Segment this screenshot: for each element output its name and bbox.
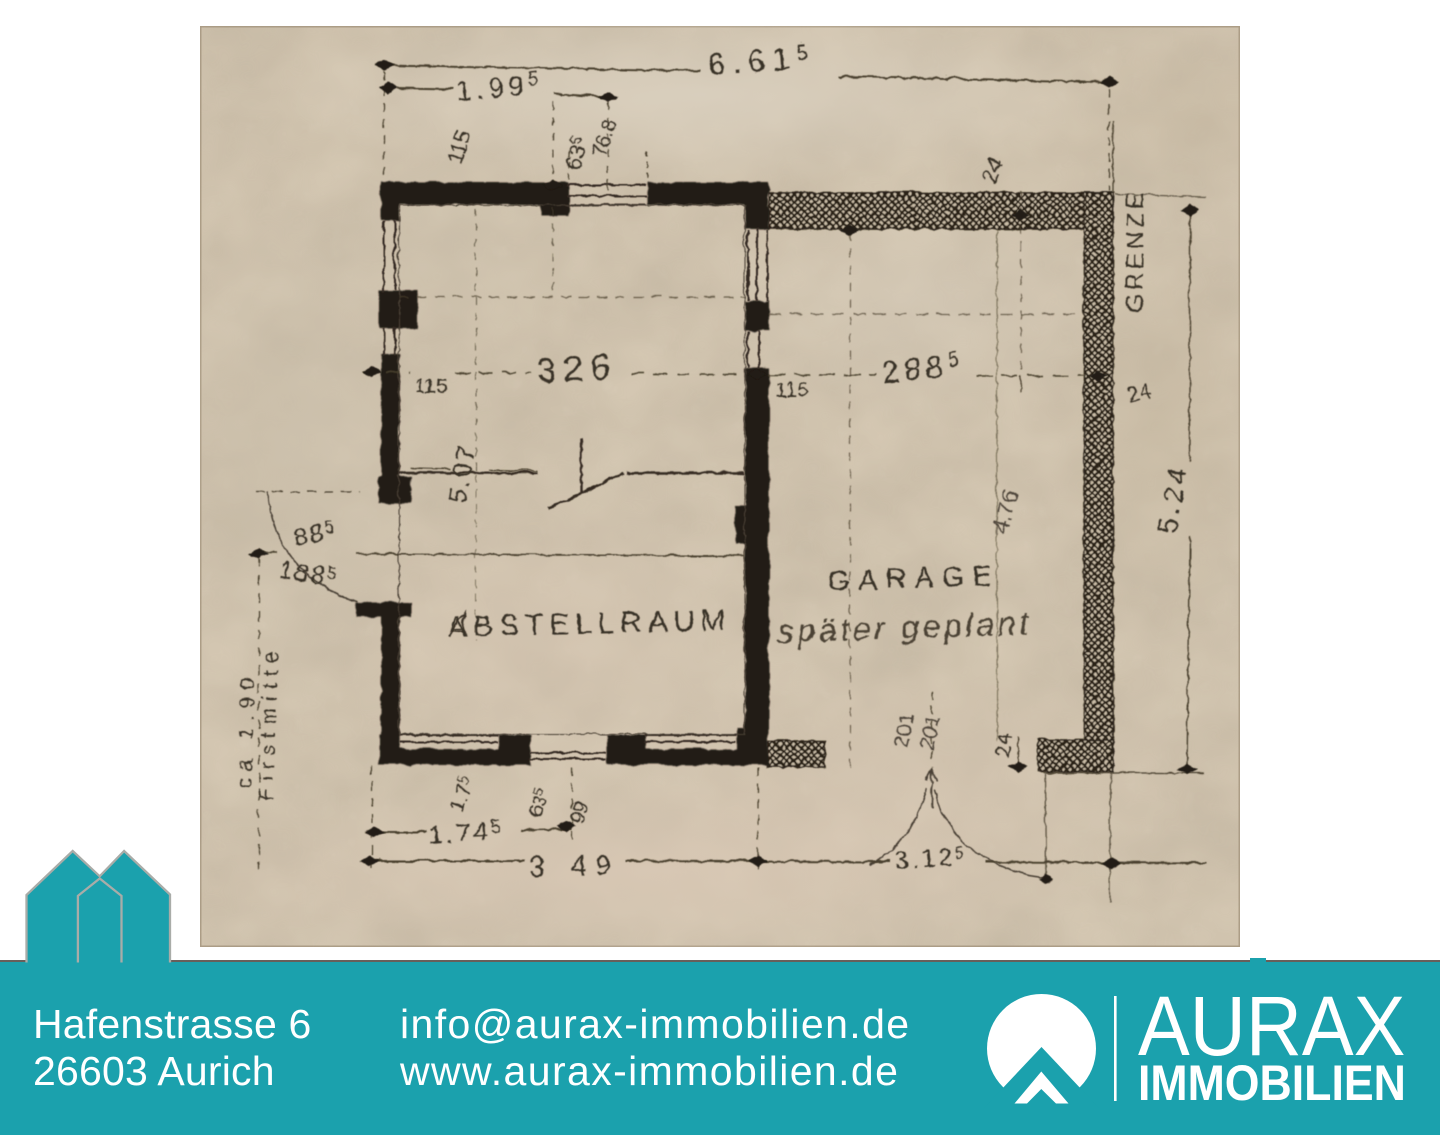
svg-text:115: 115: [413, 374, 446, 397]
svg-text:326: 326: [534, 345, 617, 390]
svg-text:24: 24: [990, 731, 1017, 758]
svg-text:GARAGE: GARAGE: [826, 559, 999, 597]
svg-text:3 49: 3 49: [528, 848, 620, 882]
svg-text:GRENZE: GRENZE: [1121, 188, 1148, 312]
svg-text:115: 115: [774, 378, 807, 401]
